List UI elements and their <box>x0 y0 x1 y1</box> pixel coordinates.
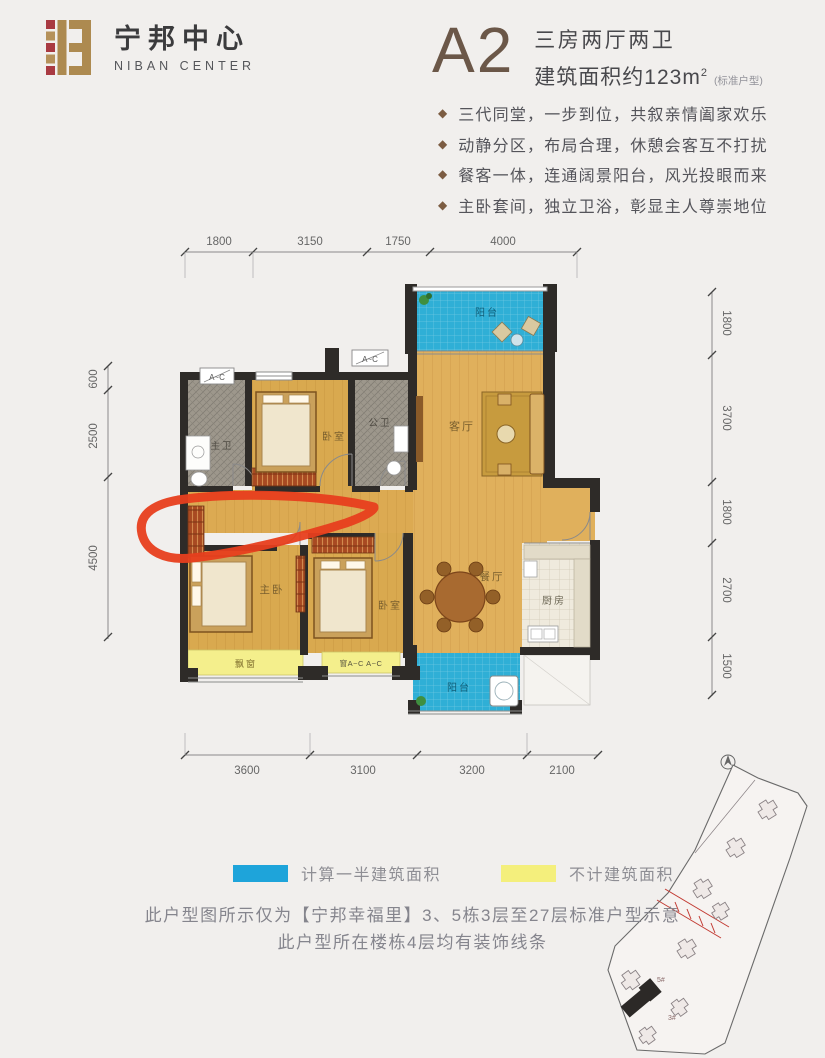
dim-top-2: 1750 <box>385 236 411 248</box>
building-label: 3# <box>668 1015 676 1022</box>
diamond-bullet-icon: ◆ <box>438 198 447 212</box>
tv-cabinet <box>416 396 423 462</box>
room-label-balcony-top: 阳台 <box>475 306 499 319</box>
kitchen-sink <box>528 626 558 642</box>
feature-item: ◆ 餐客一体，连通阔景阳台，风光投眼而来 <box>438 162 768 186</box>
unit-area-text: 建筑面积约123m <box>534 66 701 89</box>
dim-right-1: 3700 <box>720 405 732 431</box>
feature-text: 三代同堂，一步到位，共叙亲情阖家欢乐 <box>458 101 768 125</box>
feature-text: 动静分区，布局合理，休憩会客互不打扰 <box>458 132 768 156</box>
window-tag-label: A~C <box>209 373 225 382</box>
fridge <box>524 561 537 577</box>
diamond-bullet-icon: ◆ <box>438 167 447 181</box>
plant-icon <box>416 696 426 706</box>
unit-area-note: (标准户型) <box>714 75 763 87</box>
dim-right-0: 1800 <box>720 310 732 336</box>
wardrobe <box>312 537 374 553</box>
legend-label: 计算一半建筑面积 <box>301 861 441 885</box>
brand-name-en: NIBAN CENTER <box>114 59 255 73</box>
room-label-kitchen: 厨房 <box>542 594 566 607</box>
dim-top-3: 4000 <box>490 236 516 248</box>
building-label: 5# <box>657 977 665 984</box>
window-tag-label: A~C <box>362 355 378 364</box>
bay-window-tag: 窗A~C A~C <box>340 658 383 668</box>
dim-left-2: 4500 <box>88 545 100 571</box>
brand-name-cn: 宁邦中心 <box>114 24 255 54</box>
footnote-line: 此户型所在楼栋4层均有装饰线条 <box>0 929 825 956</box>
header-logo: 宁邦中心 NIBAN CENTER <box>46 20 255 76</box>
room-label-dining: 餐厅 <box>480 570 505 583</box>
feature-item: ◆ 动静分区，布局合理，休憩会客互不打扰 <box>438 132 768 156</box>
bed-top <box>256 392 316 472</box>
feature-text: 餐客一体，连通阔景阳台，风光投眼而来 <box>458 162 768 186</box>
washer <box>490 676 518 706</box>
entry-floor <box>547 487 595 541</box>
feature-item: ◆ 三代同堂，一步到位，共叙亲情阖家欢乐 <box>438 101 768 125</box>
room-label-balcony-bottom: 阳台 <box>447 681 471 694</box>
room-label-living: 客厅 <box>449 419 475 433</box>
feature-item: ◆ 主卧套间，独立卫浴，彰显主人尊崇地位 <box>438 193 768 217</box>
dim-right-2: 1800 <box>720 499 732 525</box>
unit-area-line: 建筑面积约123m2(标准户型) <box>534 61 763 91</box>
unit-code: A2 <box>432 18 514 82</box>
room-label-master-bath: 主卫 <box>210 440 233 452</box>
unit-header: A2 三房两厅两卫 建筑面积约123m2(标准户型) <box>432 18 763 91</box>
dim-bottom-1: 3100 <box>350 765 376 777</box>
bed-mid <box>314 558 372 638</box>
unit-type-line: 三房两厅两卫 <box>534 24 763 54</box>
dim-top-0: 1800 <box>206 236 232 248</box>
dim-bottom-3: 2100 <box>549 765 575 777</box>
footnote-line: 此户型图所示仅为【宁邦幸福里】3、5栋3层至27层标准户型示意 <box>0 902 825 929</box>
brand-logo-icon <box>46 20 100 76</box>
bed-master <box>190 556 252 632</box>
dim-left-0: 600 <box>88 369 100 388</box>
diamond-bullet-icon: ◆ <box>438 137 447 151</box>
dim-top-1: 3150 <box>297 236 323 248</box>
room-label-bedroom-top: 卧室 <box>322 430 346 443</box>
dim-right-4: 1500 <box>720 653 732 679</box>
footnotes: 此户型图所示仅为【宁邦幸福里】3、5栋3层至27层标准户型示意 此户型所在楼栋4… <box>0 902 825 956</box>
unit-area-sup: 2 <box>701 67 708 79</box>
wardrobe <box>296 556 305 612</box>
wardrobe-circled <box>188 506 204 558</box>
legend-swatch-blue <box>233 865 288 882</box>
diamond-bullet-icon: ◆ <box>438 106 447 120</box>
legend: 计算一半建筑面积 不计建筑面积 <box>233 861 674 885</box>
dim-left-1: 2500 <box>88 423 100 449</box>
room-label-bedroom-mid: 卧室 <box>378 599 402 612</box>
room-label-master-bedroom: 主卧 <box>260 583 285 596</box>
room-label-bay-window: 飘窗 <box>235 658 257 669</box>
room-label-guest-bath: 公卫 <box>368 418 391 429</box>
feature-list: ◆ 三代同堂，一步到位，共叙亲情阖家欢乐 ◆ 动静分区，布局合理，休憩会客互不打… <box>438 101 768 223</box>
dim-bottom-0: 3600 <box>234 765 260 777</box>
feature-text: 主卧套间，独立卫浴，彰显主人尊崇地位 <box>458 193 768 217</box>
legend-label: 不计建筑面积 <box>569 861 674 885</box>
dim-right-3: 2700 <box>720 577 732 603</box>
legend-swatch-yellow <box>501 865 556 882</box>
dim-bottom-2: 3200 <box>459 765 485 777</box>
